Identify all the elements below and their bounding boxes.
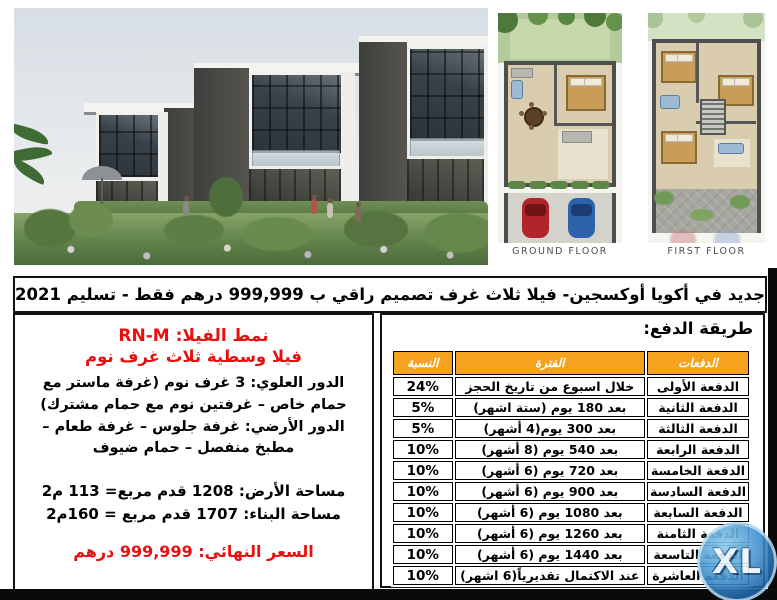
table-row: الدفعة العاشرة عند الاكتمال تقديرياً(6 ا… — [393, 566, 749, 585]
window-glass — [249, 72, 347, 156]
bush — [69, 203, 113, 237]
period-cell: عند الاكتمال تقديرياً(6 اشهر) — [455, 566, 645, 585]
carport — [504, 193, 616, 243]
percentage-cell: 5% — [393, 419, 453, 438]
villa-subtitle: فيلا وسطية ثلاث غرف نوم — [15, 347, 372, 366]
period-cell: بعد 900 يوم (6 أشهر) — [455, 482, 645, 501]
table-row: الدفعة الأولى خلال اسبوع من تاريخ الحجز … — [393, 377, 749, 396]
xl-watermark-label: XL — [712, 542, 762, 582]
table-row: الدفعة الثامنة بعد 1260 يوم (6 أشهر) 10% — [393, 524, 749, 543]
red-car-faint-icon — [670, 231, 696, 243]
dining-table-icon — [524, 107, 544, 127]
bed-icon — [566, 75, 606, 111]
percentage-cell: 10% — [393, 440, 453, 459]
period-cell: بعد 1260 يوم (6 أشهر) — [455, 524, 645, 543]
percentage-cell: 10% — [393, 524, 453, 543]
bath-vanity — [562, 131, 592, 143]
kitchen-counter — [511, 68, 533, 78]
period-cell: بعد 1080 يوم (6 أشهر) — [455, 503, 645, 522]
chair-dot — [529, 102, 534, 107]
table-row: الدفعة الثالثة بعد 300 يوم(4 أشهر) 5% — [393, 419, 749, 438]
installment-name-cell: الدفعة الخامسة — [647, 461, 749, 480]
palm-leaf — [14, 157, 48, 186]
wall-line — [554, 123, 612, 126]
period-cell: بعد 720 يوم (6 أشهر) — [455, 461, 645, 480]
headline-banner: جديد في أكويا أوكسجين- فيلا ثلاث غرف تصم… — [13, 276, 767, 313]
bed-icon — [661, 131, 697, 164]
bathtub-icon — [718, 143, 744, 154]
first-floor-label: FIRST FLOOR — [648, 246, 765, 257]
final-price-line: السعر النهائي: 999,999 درهم — [15, 542, 372, 561]
wall-line — [696, 43, 699, 103]
period-cell: بعد 180 يوم (ستة اشهر) — [455, 398, 645, 417]
villa-type-line: نمط الفيلا: RN-M — [15, 326, 372, 346]
percentage-cell: 10% — [393, 545, 453, 564]
ground-floor-plan — [498, 13, 622, 243]
villa-details-panel: نمط الفيلا: RN-M فيلا وسطية ثلاث غرف نوم… — [13, 313, 374, 597]
headline-text: جديد في أكويا أوكسجين- فيلا ثلاث غرف تصم… — [15, 285, 765, 304]
villa-render-image — [14, 8, 488, 265]
plan-building — [504, 61, 616, 187]
payment-table-body: الدفعة الأولى خلال اسبوع من تاريخ الحجز … — [393, 377, 749, 585]
window-glass — [407, 46, 488, 144]
bathtub-icon — [511, 80, 523, 99]
flower-bed — [14, 239, 488, 265]
installment-name-cell: الدفعة السابعة — [647, 503, 749, 522]
table-row: الدفعة السابعة بعد 1080 يوم (6 أشهر) 10% — [393, 503, 749, 522]
installment-name-cell: الدفعة الأولى — [647, 377, 749, 396]
black-edge-bottom — [0, 589, 777, 600]
column-installments: الدفعات — [647, 351, 749, 375]
percentage-cell: 10% — [393, 461, 453, 480]
facade-block — [359, 42, 407, 227]
installment-name-cell: الدفعة الرابعة — [647, 440, 749, 459]
installment-name-cell: الدفعة الثانية — [647, 398, 749, 417]
table-row: الدفعة الخامسة بعد 720 يوم (6 أشهر) 10% — [393, 461, 749, 480]
ground-floor-desc-label: الدور الأرضي: — [245, 419, 345, 435]
payment-plan-title: طريقة الدفع: — [382, 315, 763, 338]
period-cell: بعد 1440 يوم (6 أشهر) — [455, 545, 645, 564]
payment-table-header: الدفعات الفترة النسبة — [393, 351, 749, 375]
red-car-icon — [522, 198, 549, 238]
table-row: الدفعة الثانية بعد 180 يوم (ستة اشهر) 5% — [393, 398, 749, 417]
percentage-cell: 10% — [393, 503, 453, 522]
stairs-icon — [700, 99, 726, 135]
floors-description: الدور العلوي: 3 غرف نوم (غرفة ماستر مع ح… — [29, 373, 359, 460]
plan-building — [652, 39, 761, 197]
bush — [730, 195, 750, 209]
bathtub-icon — [660, 95, 680, 109]
wall — [341, 72, 355, 222]
period-cell: بعد 300 يوم(4 أشهر) — [455, 419, 645, 438]
table-row: الدفعة السادسة بعد 900 يوم (6 أشهر) 10% — [393, 482, 749, 501]
bush — [654, 191, 674, 205]
installment-name-cell: الدفعة السادسة — [647, 482, 749, 501]
wall-line — [554, 65, 557, 123]
ground-floor-label: GROUND FLOOR — [498, 246, 622, 257]
percentage-cell: 10% — [393, 482, 453, 501]
chair-dot — [529, 125, 534, 130]
column-period: الفترة — [455, 351, 645, 375]
percentage-cell: 5% — [393, 398, 453, 417]
table-row: الدفعة الرابعة بعد 540 يوم (8 أشهر) 10% — [393, 440, 749, 459]
blue-car-icon — [568, 198, 595, 238]
hedge-row — [508, 181, 610, 189]
land-area-line: مساحة الأرض: 1208 قدم مربع= 113 م2 — [15, 480, 372, 503]
column-percentage: النسبة — [393, 351, 453, 375]
first-floor-plan — [648, 13, 765, 243]
percentage-cell: 24% — [393, 377, 453, 396]
umbrella-pole — [101, 178, 103, 204]
chair-dot — [519, 111, 524, 116]
period-cell: بعد 540 يوم (8 أشهر) — [455, 440, 645, 459]
installment-name-cell: الدفعة الثالثة — [647, 419, 749, 438]
payment-table: الدفعات الفترة النسبة الدفعة الأولى خلال… — [391, 349, 751, 587]
chair-dot — [542, 111, 547, 116]
areas-block: مساحة الأرض: 1208 قدم مربع= 113 م2 مساحة… — [15, 480, 372, 527]
built-area-line: مساحة البناء: 1707 قدم مربع = 160م2 — [15, 503, 372, 526]
palm-leaf — [14, 122, 51, 146]
real-estate-flyer: GROUND FLOOR FIRST FLOOR جديد في أكويا أ… — [0, 0, 777, 600]
table-row: الدفعة التاسعة بعد 1440 يوم (6 أشهر) 10% — [393, 545, 749, 564]
shrub — [209, 177, 243, 217]
period-cell: خلال اسبوع من تاريخ الحجز — [455, 377, 645, 396]
bed-icon — [661, 51, 697, 83]
xl-watermark: XL — [697, 522, 777, 600]
percentage-cell: 10% — [393, 566, 453, 585]
balcony-glass — [410, 138, 488, 158]
upper-floor-label: الدور العلوي: — [250, 375, 344, 391]
bush — [690, 209, 714, 221]
tree-icon — [606, 13, 622, 31]
blue-car-faint-icon — [714, 231, 740, 243]
